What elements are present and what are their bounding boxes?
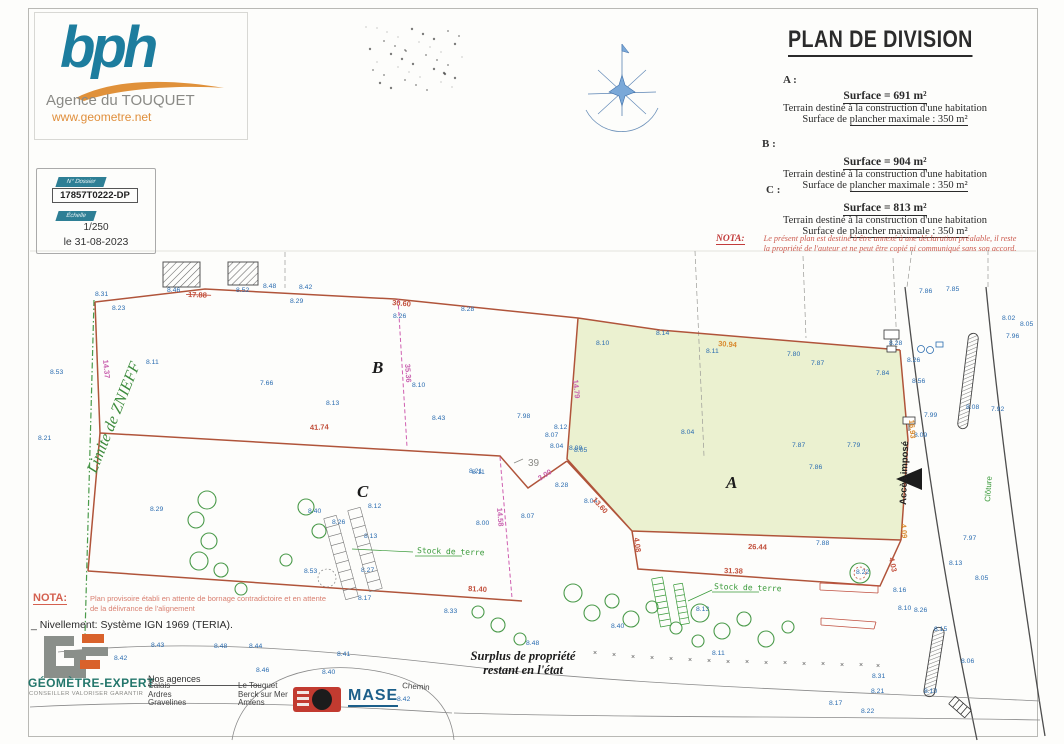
scan-speckle [404, 79, 406, 81]
parcel-usage: Terrain destiné à la construction d'une … [735, 215, 1035, 226]
page-title: PLAN DE DIVISION [788, 26, 973, 57]
dossier-number: 17857T0222-DP [52, 188, 138, 203]
parcel-number-tick [514, 459, 523, 463]
scan-speckle [398, 67, 399, 68]
elevation-value: 8.42 [397, 696, 410, 703]
mase-wordmark: MASE [348, 687, 398, 707]
scan-speckle [436, 59, 438, 61]
measure-label: 16.93 [907, 419, 918, 438]
elevation-value: 8.21 [871, 688, 884, 695]
scan-speckle [454, 77, 456, 79]
boundary-cross-mark: × [688, 657, 692, 664]
scan-speckle [401, 58, 403, 60]
boundary-cross-mark: × [764, 660, 768, 667]
scan-speckle [405, 50, 407, 52]
elevation-value: 8.28 [555, 482, 568, 489]
boundary-cross-mark: × [745, 659, 749, 666]
elevation-value: 8.11 [146, 359, 159, 366]
measure-label: 30.60 [392, 298, 411, 309]
agencies-column-1: CalaisArdresGravelines [148, 682, 186, 708]
tree-symbol [758, 631, 774, 647]
elevation-value: 8.29 [150, 506, 163, 513]
scan-speckle [452, 87, 453, 88]
elevation-value: 8.08 [966, 404, 979, 411]
scan-speckle [412, 63, 414, 65]
parcel-letter: A [725, 473, 737, 492]
elevation-value: 7.99 [924, 412, 937, 419]
elevation-value: 7.86 [919, 288, 932, 295]
scan-speckle [458, 35, 460, 37]
scale-value: 1/250 [37, 222, 155, 233]
elevation-value: 8.10 [596, 340, 609, 347]
elevation-value: 8.05 [975, 575, 988, 582]
measure-label: 41.74 [310, 422, 330, 432]
elevation-value: 8.48 [263, 283, 276, 290]
provisional-nota-line2: de la délivrance de l'alignement [90, 604, 195, 613]
elevation-value: 8.40 [611, 623, 624, 630]
elevation-value: 8.16 [893, 587, 906, 594]
agency-item: Amiens [238, 699, 288, 708]
elevation-value: 8.05 [1020, 321, 1033, 328]
measure-label: 35.36 [403, 364, 413, 383]
plan-annotation: Accès imposé [898, 441, 911, 505]
parcel-letter: C [357, 482, 369, 501]
elevation-value: 8.42 [299, 284, 312, 291]
dossier-label: N° Dossier [55, 177, 106, 187]
parcel-floor-max: plancher maximale : 350 m² [850, 114, 968, 126]
talus-hatching [949, 696, 972, 718]
building-hatched [163, 262, 200, 287]
elevation-value: 8.31 [95, 291, 108, 298]
nota-text-line1: Le présent plan est destiné à être annex… [742, 234, 1038, 243]
elevation-value: 8.40 [322, 669, 335, 676]
tree-symbol [714, 623, 730, 639]
scan-speckle [444, 73, 446, 75]
scan-speckle [422, 33, 424, 35]
elevation-value: 8.04 [550, 443, 563, 450]
elevation-value: 8.26 [393, 313, 406, 320]
measure-label: 31.38 [724, 566, 743, 576]
agency-name: Agence du TOUQUET [46, 92, 195, 109]
elevation-value: 8.23 [112, 305, 125, 312]
scan-speckle [398, 37, 399, 38]
talus-hatching [674, 583, 690, 625]
elevation-value: 8.56 [912, 378, 925, 385]
elevation-value: 8.22 [861, 708, 874, 715]
measure-label: 14.37 [101, 359, 112, 379]
boundary-cross-mark: × [707, 658, 711, 665]
elevation-value: 7.85 [946, 286, 959, 293]
elevation-value: 8.26 [907, 357, 920, 364]
elevation-value: 8.12 [554, 424, 567, 431]
scan-speckle [447, 64, 449, 66]
elevation-value: 8.53 [304, 568, 317, 575]
parcel-id: C : [766, 184, 780, 196]
tree-symbol [782, 621, 794, 633]
cadastral-parcel-number: 39 [528, 458, 540, 469]
parcel-surface: Surface = 813 m² [843, 202, 926, 216]
scan-speckle [411, 28, 413, 30]
scan-speckle [366, 27, 367, 28]
tree-symbol [584, 605, 600, 621]
scan-speckle [383, 40, 385, 42]
scan-speckle [387, 32, 388, 33]
elevation-value: 8.43 [432, 415, 445, 422]
boundary-cross-mark: × [631, 654, 635, 661]
elevation-value: 8.33 [444, 608, 457, 615]
measure-label: 26.44 [748, 542, 768, 552]
measure-label: 3.00 [536, 467, 553, 483]
elevation-value: 8.07 [521, 513, 534, 520]
elevation-value: 8.28 [889, 340, 902, 347]
elevation-value: 8.02 [1002, 315, 1015, 322]
elevation-value: 7.92 [991, 406, 1004, 413]
elevation-value: 8.22 [856, 569, 869, 576]
tree-symbol [214, 563, 228, 577]
elevation-value: 7.79 [847, 442, 860, 449]
elevation-value: 8.17 [358, 595, 371, 602]
provisional-nota-label: NOTA: [33, 592, 67, 605]
elevation-value: 8.26 [914, 607, 927, 614]
scanned-plan-sheet: 8.318.238.468.528.488.428.298.268.288.53… [0, 0, 1064, 744]
plan-annotation: Chemin [402, 681, 430, 692]
scan-speckle [420, 77, 421, 78]
tree-symbol [280, 554, 292, 566]
building-hatched [228, 262, 258, 285]
elevation-value: 8.11 [706, 348, 719, 355]
agencies-column-2: Le TouquetBerck sur MerAmiens [238, 682, 288, 708]
plan-annotation: Clôture [983, 475, 994, 502]
surplus-line1: Surplus de propriété [438, 649, 608, 663]
elevation-value: 8.04 [681, 429, 694, 436]
parcel-usage: Terrain destiné à la construction d'une … [735, 169, 1035, 180]
scan-speckle [383, 74, 385, 76]
measure-label: 4.03 [887, 557, 899, 573]
elevation-value: 8.13 [949, 560, 962, 567]
elevation-value: 8.42 [114, 655, 127, 662]
tree-symbol [692, 635, 704, 647]
boundary-cross-mark: × [726, 659, 730, 666]
scan-speckle [454, 43, 456, 45]
terrace-walls [820, 583, 878, 629]
parcel-letter: B [371, 358, 383, 377]
tree-symbol [198, 491, 216, 509]
levelling-note: _ Nivellement: Système IGN 1969 (TERIA). [31, 619, 233, 631]
elevation-value: 8.41 [337, 651, 350, 658]
scan-speckle [425, 54, 427, 56]
scan-speckle [441, 82, 442, 83]
elevation-value: 8.00 [476, 520, 489, 527]
elevation-value: 7.80 [787, 351, 800, 358]
elevation-value: 8.13 [326, 400, 339, 407]
parcel-surface: Surface = 691 m² [843, 90, 926, 104]
mase-globe-icon [312, 689, 332, 710]
agency-item: Gravelines [148, 699, 186, 708]
elevation-value: 8.10 [898, 605, 911, 612]
nota-label: NOTA: [716, 234, 745, 245]
boundary-cross-mark: × [802, 661, 806, 668]
surplus-line2: restant en l'état [438, 663, 608, 677]
elevation-value: 8.28 [461, 306, 474, 313]
elevation-value: 8.05 [574, 447, 587, 454]
measure-label: 4.08 [632, 537, 643, 553]
elevation-value: 8.10 [924, 688, 937, 695]
elevation-value: 8.17 [829, 700, 842, 707]
elevation-value: 8.12 [368, 503, 381, 510]
scale-label: Échelle [55, 211, 96, 221]
scan-speckle [441, 52, 442, 53]
boundary-cross-mark: × [840, 662, 844, 669]
traffic-island [957, 333, 979, 430]
elevation-value: 8.29 [290, 298, 303, 305]
scan-speckle [419, 42, 420, 43]
talus-circle [318, 569, 336, 587]
project-info-box: N° Dossier 17857T0222-DP Échelle 1/250 l… [36, 168, 156, 254]
parcel-a-description: A : Surface = 691 m² Terrain destiné à l… [735, 72, 1035, 132]
scan-speckle [372, 69, 374, 71]
parcel-floor-prefix: Surface de [802, 114, 849, 125]
elevation-value: 8.48 [526, 640, 539, 647]
tree-symbol [737, 612, 751, 626]
elevation-value: 7.98 [517, 413, 530, 420]
surplus-note: Surplus de propriété restant en l'état [438, 649, 608, 677]
scan-speckle [394, 45, 396, 47]
scan-speckle [433, 38, 435, 40]
scan-speckle [415, 84, 417, 86]
tree-symbol [472, 606, 484, 618]
measure-label: 81.40 [468, 584, 487, 594]
elevation-value: 8.43 [151, 642, 164, 649]
scan-speckle [379, 82, 381, 84]
elevation-value: 8.13 [364, 533, 377, 540]
tree-symbol [564, 584, 582, 602]
boundary-cross-mark: × [859, 662, 863, 669]
elevation-value: 8.48 [214, 643, 227, 650]
geometre-expert-tagline: CONSEILLER VALORISER GARANTIR [29, 691, 143, 697]
parcel-id: B : [762, 138, 776, 150]
boundary-cross-mark: × [783, 660, 787, 667]
traffic-island [923, 627, 945, 698]
tree-symbol [605, 594, 619, 608]
geometre-expert-logo [42, 634, 112, 678]
scan-speckle [369, 48, 371, 50]
elevation-value: 7.97 [963, 535, 976, 542]
boundary-cross-mark: × [669, 656, 673, 663]
tree-symbol [201, 533, 217, 549]
scan-speckle [390, 87, 392, 89]
bph-logo: bph [60, 14, 154, 81]
scan-speckle [390, 53, 392, 55]
scan-speckle [447, 30, 449, 32]
elevation-value: 8.21 [38, 435, 51, 442]
elevation-value: 8.46 [167, 287, 180, 294]
elevation-value: 8.21 [469, 468, 482, 475]
parcel-usage: Terrain destiné à la construction d'une … [735, 103, 1035, 114]
tree-symbol [298, 499, 314, 515]
boundary-cross-mark: × [612, 652, 616, 659]
elevation-value: 7.88 [816, 540, 829, 547]
elevation-value: 8.07 [545, 432, 558, 439]
elevation-value: 8.15 [934, 626, 947, 633]
plan-date: le 31-08-2023 [37, 236, 155, 248]
elevation-value: 7.87 [792, 442, 805, 449]
scan-speckle [430, 47, 431, 48]
parcel-a-area [567, 318, 908, 540]
agencies-block: Nos agences CalaisArdresGravelines Le To… [148, 669, 298, 687]
scan-speckle [433, 68, 435, 70]
nota-text-line2: la propriété de l'auteur et ne peut être… [742, 244, 1038, 253]
scan-speckle [377, 28, 378, 29]
tree-symbol [623, 611, 639, 627]
elevation-value: 8.14 [656, 330, 669, 337]
scan-speckle [409, 72, 410, 73]
tree-symbol [188, 512, 204, 528]
plan-annotation: Limite de ZNIEFF [84, 359, 145, 476]
parcel-id: A : [783, 74, 797, 86]
website-link[interactable]: www.geometre.net [52, 110, 151, 124]
elevation-value: 8.31 [872, 673, 885, 680]
tree-symbol [514, 633, 526, 645]
measure-label: 30.94 [718, 339, 738, 349]
elevation-value: 7.86 [809, 464, 822, 471]
scan-speckle [426, 89, 428, 91]
boundary-cross-mark: × [650, 655, 654, 662]
elevation-value: 7.66 [260, 380, 273, 387]
boundary-cross-mark: × [876, 663, 880, 670]
tree-symbol [190, 552, 208, 570]
scan-speckle [462, 57, 463, 58]
elevation-value: 8.53 [50, 369, 63, 376]
provisional-nota-line1: Plan provisoire établi en attente de bor… [90, 594, 326, 603]
elevation-value: 8.11 [712, 650, 725, 657]
elevation-value: 7.96 [1006, 333, 1019, 340]
boundary-cross-mark: × [821, 661, 825, 668]
parcel-surface: Surface = 904 m² [843, 156, 926, 170]
measure-label: 14.58 [495, 507, 506, 526]
north-compass-icon [586, 44, 658, 132]
tree-symbol [312, 524, 326, 538]
elevation-value: 8.52 [236, 287, 249, 294]
elevation-value: 7.87 [811, 360, 824, 367]
elevation-value: 8.06 [961, 658, 974, 665]
elevation-value: 8.44 [249, 643, 262, 650]
elevation-value: 8.10 [412, 382, 425, 389]
geometre-expert-name: GÉOMÈTRE-EXPERT [28, 676, 155, 690]
mase-logo [293, 687, 341, 712]
measure-label: 4.09 [899, 523, 909, 538]
tree-symbol [491, 618, 505, 632]
scan-speckle [377, 62, 378, 63]
elevation-value: 7.84 [876, 370, 889, 377]
